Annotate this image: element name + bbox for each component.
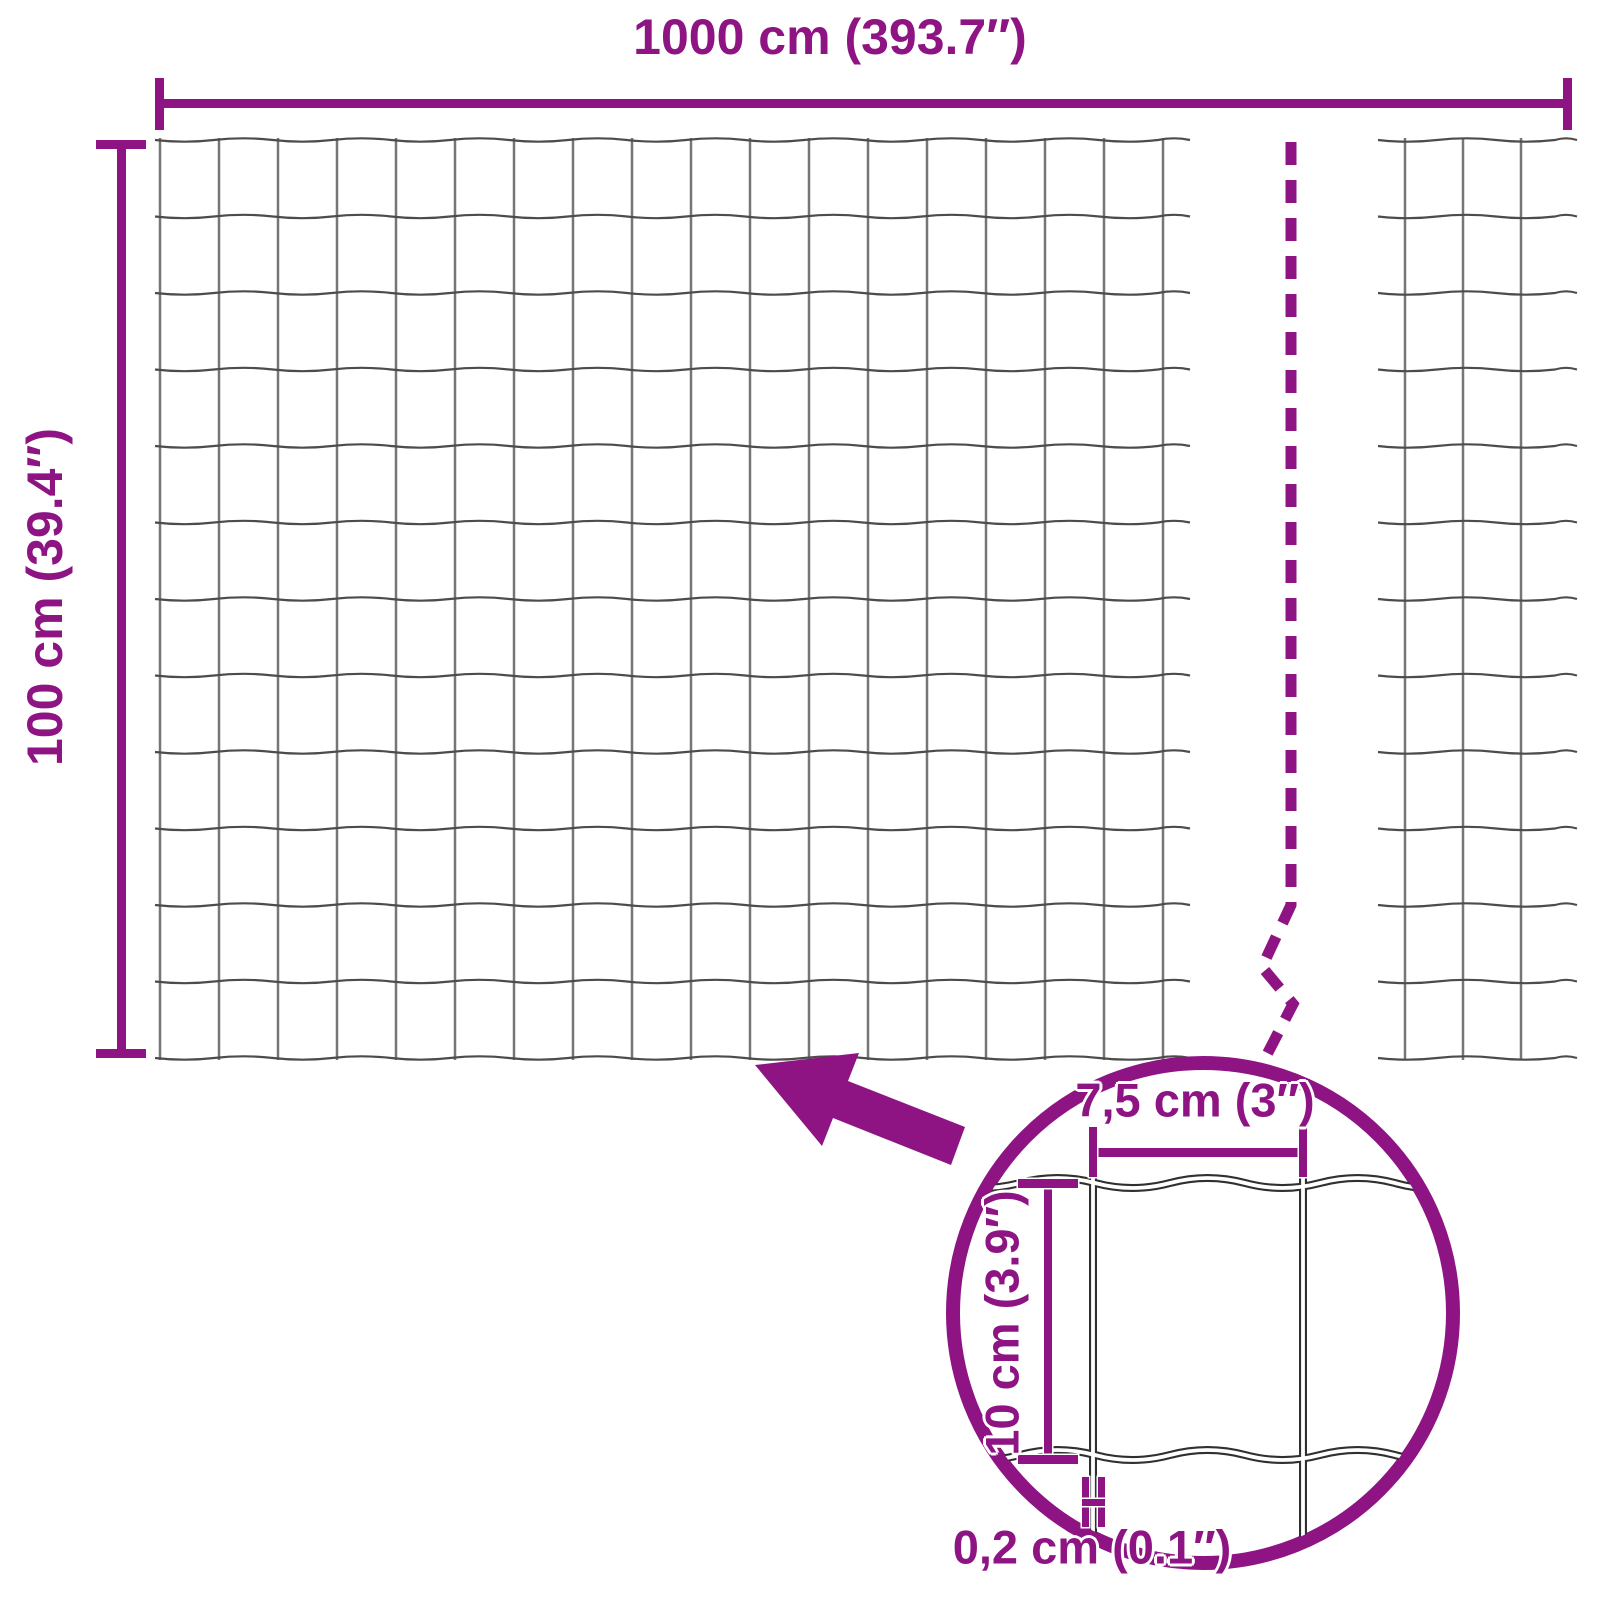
break-leader-dashed-line [1259, 142, 1293, 1070]
total-height-label: 100 cm (39.4″) [16, 428, 74, 766]
width-dimension-line [155, 78, 1572, 130]
fence-dimension-diagram: 1000 cm (393.7″) 100 cm (39.4″) 7,5 cm (… [0, 0, 1600, 1600]
total-width-label: 1000 cm (393.7″) [633, 8, 1027, 66]
right-mesh-piece [1378, 138, 1577, 1060]
arrow-icon [755, 1053, 965, 1165]
wire-thickness-label: 0,2 cm (0.1″) [953, 1520, 1232, 1575]
main-mesh [155, 138, 1190, 1060]
diagram-canvas [0, 0, 1600, 1600]
height-dimension-line [96, 140, 146, 1058]
detail-mesh-width-label: 7,5 cm (3″) [1075, 1073, 1314, 1128]
detail-mesh-height-label: 10 cm (3.9″) [975, 1190, 1030, 1455]
